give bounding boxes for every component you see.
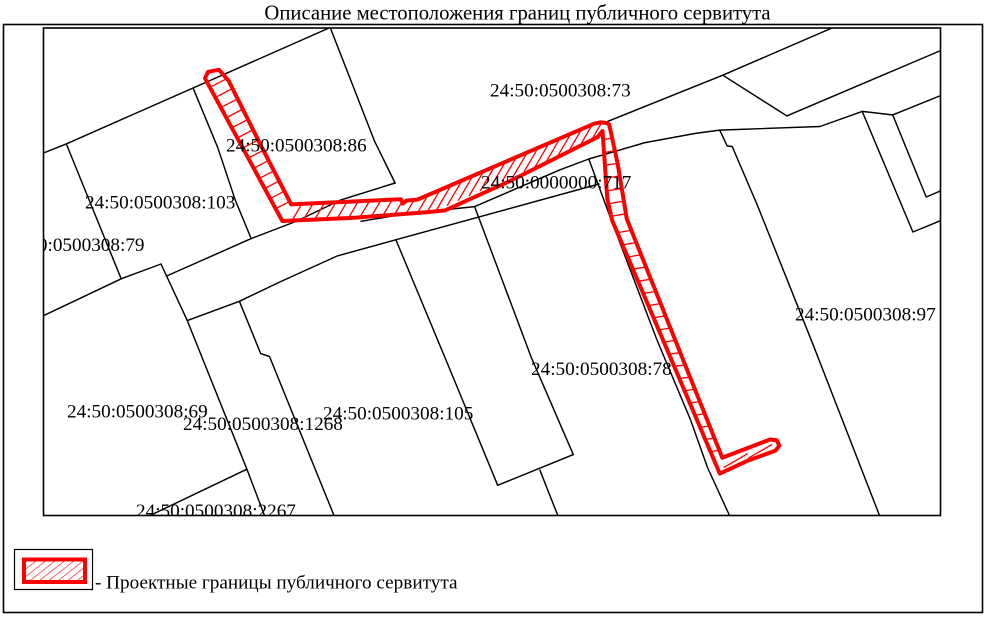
- svg-text:24:50:0500308:1268: 24:50:0500308:1268: [183, 414, 343, 435]
- svg-text:- Проектные границы публичного: - Проектные границы публичного сервитута: [95, 573, 458, 594]
- svg-text:24:50:0500308:97: 24:50:0500308:97: [795, 305, 936, 326]
- svg-text:24:50:0500308:86: 24:50:0500308:86: [226, 135, 367, 156]
- svg-text:24:50:0500308:73: 24:50:0500308:73: [490, 80, 631, 101]
- svg-text:24:50:0500308:103: 24:50:0500308:103: [85, 193, 235, 214]
- svg-text:24:50:0500308:2267: 24:50:0500308:2267: [136, 501, 296, 522]
- svg-text:24:50:0000000:717: 24:50:0000000:717: [481, 173, 632, 194]
- svg-text:24:50:0500308:79: 24:50:0500308:79: [4, 235, 145, 256]
- svg-text:24:50:0500308:78: 24:50:0500308:78: [531, 359, 672, 380]
- svg-text:24:50:0500308:105: 24:50:0500308:105: [323, 403, 473, 424]
- svg-text:Описание местоположения границ: Описание местоположения границ публичног…: [264, 3, 770, 25]
